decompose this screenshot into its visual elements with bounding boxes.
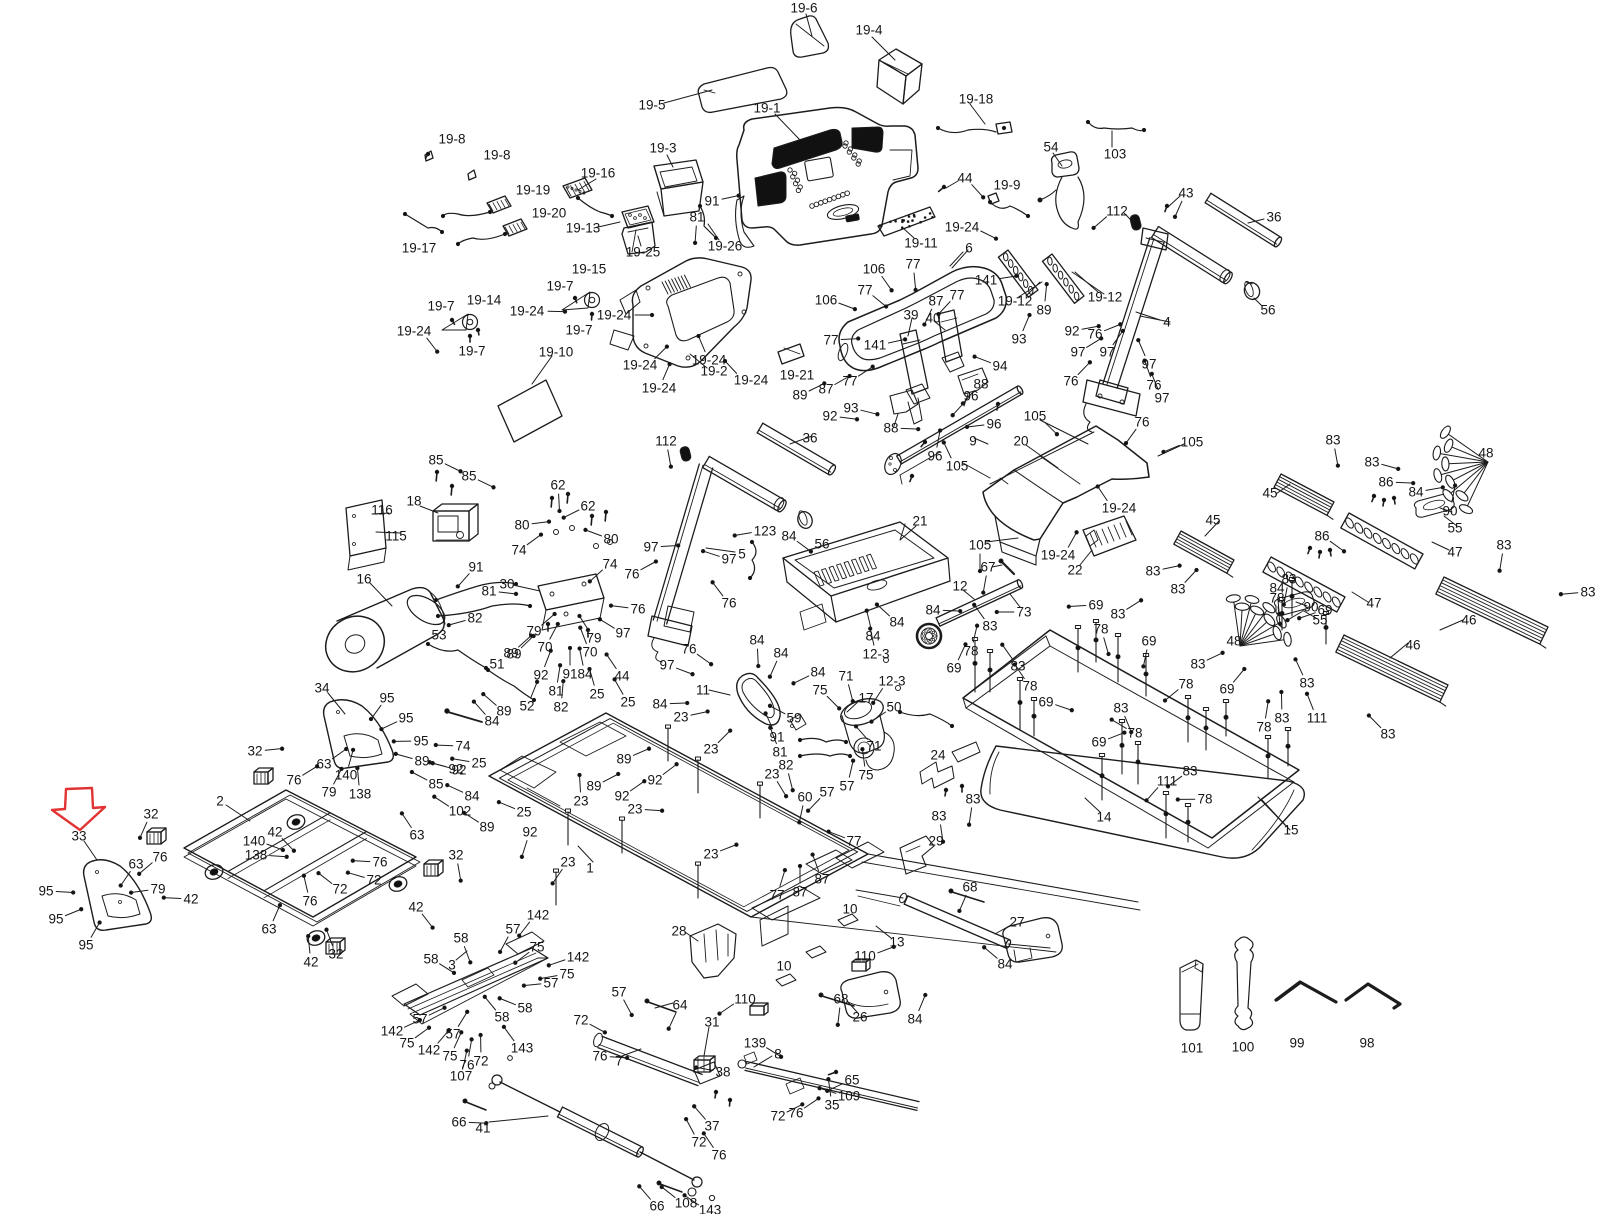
svg-text:27: 27 [1009,915,1024,930]
svg-text:93: 93 [1011,332,1026,347]
svg-text:45: 45 [1262,486,1277,501]
svg-text:46: 46 [1405,638,1420,653]
svg-text:91: 91 [562,667,577,682]
svg-text:75: 75 [442,1049,457,1064]
svg-text:87: 87 [792,885,807,900]
svg-text:87: 87 [814,872,829,887]
svg-text:75: 75 [399,1036,414,1051]
svg-text:19-6: 19-6 [790,1,817,16]
svg-text:91: 91 [468,560,483,575]
svg-text:58: 58 [494,1010,509,1025]
svg-text:32: 32 [328,947,343,962]
svg-text:89: 89 [586,779,601,794]
svg-text:9: 9 [969,434,977,449]
svg-text:57: 57 [445,1027,460,1042]
svg-text:97: 97 [721,552,736,567]
svg-text:50: 50 [886,700,901,715]
svg-text:99: 99 [1289,1036,1304,1051]
svg-text:36: 36 [1266,210,1281,225]
svg-text:83: 83 [1182,764,1197,779]
svg-text:81: 81 [689,210,704,225]
svg-text:83: 83 [1299,676,1314,691]
svg-text:97: 97 [1070,345,1085,360]
svg-text:19-13: 19-13 [566,221,601,236]
svg-text:13: 13 [889,935,904,950]
svg-text:72: 72 [332,882,347,897]
svg-text:75: 75 [559,967,574,982]
svg-text:25: 25 [471,756,486,771]
svg-text:32: 32 [143,807,158,822]
svg-text:92: 92 [448,762,463,777]
svg-text:87: 87 [818,382,833,397]
svg-text:19-20: 19-20 [532,206,567,221]
svg-text:70: 70 [582,645,597,660]
svg-text:74: 74 [602,557,618,572]
svg-text:38: 38 [715,1065,730,1080]
svg-text:79: 79 [150,882,165,897]
svg-text:19-26: 19-26 [708,239,743,254]
svg-text:2: 2 [216,794,224,809]
svg-text:93: 93 [843,401,858,416]
svg-text:89: 89 [792,388,807,403]
svg-text:25: 25 [589,687,604,702]
svg-text:78: 78 [963,644,978,659]
svg-text:19-19: 19-19 [516,183,551,198]
svg-text:84: 84 [907,1012,923,1027]
svg-text:11: 11 [696,683,710,698]
svg-text:78: 78 [1197,792,1212,807]
svg-text:69: 69 [1317,603,1332,618]
svg-text:40: 40 [925,311,940,326]
svg-text:25: 25 [516,805,531,820]
svg-text:84: 84 [781,529,797,544]
svg-text:19-16: 19-16 [581,166,616,181]
svg-text:72: 72 [770,1109,785,1124]
svg-text:82: 82 [553,700,568,715]
svg-text:19-7: 19-7 [565,323,592,338]
svg-text:84: 84 [865,629,881,644]
svg-text:143: 143 [699,1203,722,1214]
svg-text:84: 84 [577,667,593,682]
svg-text:75: 75 [812,683,827,698]
svg-text:77: 77 [842,374,857,389]
svg-text:51: 51 [489,657,504,672]
svg-text:23: 23 [703,742,718,757]
svg-text:10: 10 [776,959,791,974]
svg-text:47: 47 [1366,596,1381,611]
svg-text:141: 141 [864,338,887,353]
svg-text:76: 76 [302,894,317,909]
svg-text:16: 16 [356,572,371,587]
svg-text:25: 25 [620,695,635,710]
svg-text:76: 76 [630,602,645,617]
svg-text:29: 29 [928,834,943,849]
svg-text:91: 91 [769,730,784,745]
svg-text:110: 110 [734,992,756,1007]
svg-text:74: 74 [511,543,527,558]
svg-text:82: 82 [467,611,482,626]
svg-text:41: 41 [475,1121,490,1136]
svg-text:81: 81 [548,684,563,699]
svg-text:63: 63 [261,922,276,937]
svg-text:83: 83 [1010,659,1025,674]
svg-text:73: 73 [1016,605,1031,620]
svg-text:22: 22 [1067,563,1082,578]
svg-text:19-7: 19-7 [427,299,454,314]
svg-text:89: 89 [479,820,494,835]
svg-text:19-17: 19-17 [402,241,437,256]
svg-text:95: 95 [413,734,428,749]
svg-text:84: 84 [464,789,480,804]
svg-text:89: 89 [616,752,631,767]
svg-text:69: 69 [1141,634,1156,649]
svg-text:96: 96 [986,417,1001,432]
svg-text:72: 72 [473,1054,488,1069]
svg-text:19-5: 19-5 [638,98,665,113]
svg-text:89: 89 [414,754,429,769]
svg-text:83: 83 [1170,582,1185,597]
svg-text:103: 103 [1104,147,1127,162]
svg-text:76: 76 [681,642,696,657]
svg-text:19-8: 19-8 [438,132,465,147]
svg-text:19-8: 19-8 [483,148,510,163]
svg-text:37: 37 [704,1119,719,1134]
svg-text:76: 76 [1063,374,1078,389]
svg-text:62: 62 [550,478,565,493]
svg-text:63: 63 [409,828,424,843]
svg-text:72: 72 [573,1013,588,1028]
svg-text:34: 34 [314,681,330,696]
svg-text:76: 76 [624,567,639,582]
svg-text:77: 77 [857,283,872,298]
svg-text:69: 69 [1088,598,1103,613]
svg-text:89: 89 [1036,303,1051,318]
svg-text:105: 105 [1024,409,1047,424]
svg-text:12: 12 [952,579,967,594]
svg-text:32: 32 [448,848,463,863]
svg-text:140: 140 [243,834,266,849]
svg-text:28: 28 [671,924,686,939]
svg-text:141: 141 [975,273,998,288]
svg-text:56: 56 [814,537,829,552]
svg-text:83: 83 [1145,564,1160,579]
svg-text:54: 54 [1043,140,1059,155]
svg-text:106: 106 [863,262,886,277]
svg-text:19-24: 19-24 [623,358,658,373]
svg-text:57: 57 [839,779,854,794]
svg-text:116: 116 [371,503,393,518]
svg-text:19-18: 19-18 [959,92,994,107]
svg-text:90: 90 [1442,504,1457,519]
svg-text:71: 71 [866,739,881,754]
svg-text:110: 110 [854,949,876,964]
svg-text:142: 142 [567,950,590,965]
svg-text:83: 83 [1380,727,1395,742]
svg-text:105: 105 [969,538,992,553]
svg-text:94: 94 [992,359,1008,374]
svg-text:83: 83 [1274,711,1289,726]
svg-text:79: 79 [586,631,601,646]
svg-text:19-11: 19-11 [904,236,938,251]
svg-text:64: 64 [672,998,688,1013]
svg-text:83: 83 [1364,455,1379,470]
svg-text:83: 83 [1190,657,1205,672]
svg-text:62: 62 [580,499,595,514]
svg-text:108: 108 [675,1196,698,1211]
svg-text:84: 84 [925,603,941,618]
svg-text:19-24: 19-24 [1102,501,1137,516]
svg-text:112: 112 [655,434,677,449]
svg-text:107: 107 [450,1069,473,1084]
svg-text:83: 83 [1496,538,1511,553]
svg-text:12-3: 12-3 [878,674,905,689]
svg-text:66: 66 [451,1115,466,1130]
svg-text:35: 35 [824,1098,839,1113]
svg-text:57: 57 [412,1012,427,1027]
svg-text:8: 8 [774,1047,782,1062]
svg-text:74: 74 [455,739,471,754]
svg-text:138: 138 [245,848,268,863]
svg-text:72: 72 [366,873,381,888]
svg-text:57: 57 [819,785,834,800]
svg-text:7: 7 [615,1054,623,1069]
svg-text:68: 68 [962,880,977,895]
svg-text:19-7: 19-7 [458,344,485,359]
svg-text:105: 105 [1181,435,1204,450]
svg-text:44: 44 [957,171,973,186]
svg-text:115: 115 [385,529,407,544]
svg-text:95: 95 [38,884,53,899]
svg-text:95: 95 [379,691,394,706]
svg-text:19-10: 19-10 [539,345,574,360]
svg-text:17: 17 [858,691,873,706]
svg-text:100: 100 [1232,1040,1255,1055]
svg-text:19-12: 19-12 [1088,290,1123,305]
svg-text:45: 45 [1205,513,1220,528]
svg-text:10: 10 [842,902,857,917]
svg-text:48: 48 [1226,634,1241,649]
svg-text:96: 96 [963,389,978,404]
svg-text:55: 55 [1447,521,1462,536]
svg-text:19-3: 19-3 [649,141,676,156]
svg-text:63: 63 [128,857,143,872]
svg-text:123: 123 [754,524,777,539]
svg-text:79: 79 [526,624,541,639]
svg-text:58: 58 [453,931,468,946]
svg-text:84: 84 [749,633,765,648]
svg-text:19-15: 19-15 [572,262,607,277]
svg-text:23: 23 [764,767,779,782]
svg-text:19-4: 19-4 [855,23,883,38]
svg-text:52: 52 [519,699,534,714]
svg-text:98: 98 [1359,1036,1374,1051]
svg-text:143: 143 [511,1041,534,1056]
svg-text:69: 69 [946,661,961,676]
svg-text:97: 97 [1154,391,1169,406]
svg-text:15: 15 [1283,823,1298,838]
svg-text:105: 105 [946,459,969,474]
svg-text:57: 57 [505,922,520,937]
svg-text:84: 84 [889,615,905,630]
svg-text:139: 139 [744,1036,767,1051]
svg-text:83: 83 [982,619,997,634]
svg-text:82: 82 [778,758,793,773]
svg-text:83: 83 [1325,433,1340,448]
svg-text:19-21: 19-21 [780,368,815,383]
svg-text:76: 76 [1087,327,1102,342]
svg-text:96: 96 [927,449,942,464]
svg-text:76: 76 [152,850,167,865]
svg-text:18: 18 [406,494,421,509]
svg-text:80: 80 [514,518,529,533]
svg-text:97: 97 [659,658,674,673]
svg-text:23: 23 [573,794,588,809]
svg-text:19-24: 19-24 [692,353,727,368]
svg-text:58: 58 [423,952,438,967]
svg-text:42: 42 [408,900,423,915]
svg-text:75: 75 [529,940,544,955]
svg-text:6: 6 [965,241,973,256]
svg-text:39: 39 [903,308,918,323]
svg-text:19-12: 19-12 [998,294,1033,309]
svg-text:14: 14 [1096,810,1112,825]
svg-text:19-24: 19-24 [510,304,545,319]
svg-text:19-24: 19-24 [642,381,677,396]
svg-text:5: 5 [738,547,746,562]
svg-text:79: 79 [321,785,336,800]
svg-text:19-7: 19-7 [546,279,573,294]
svg-text:101: 101 [1181,1041,1204,1056]
svg-text:78: 78 [1269,591,1284,606]
svg-text:140: 140 [335,768,358,783]
svg-text:60: 60 [797,790,812,805]
svg-text:23: 23 [627,802,642,817]
svg-text:95: 95 [398,711,413,726]
svg-text:78: 78 [1127,726,1142,741]
svg-text:83: 83 [1281,572,1296,587]
svg-text:30: 30 [499,577,514,592]
svg-text:77: 77 [769,888,784,903]
svg-text:31: 31 [704,1015,719,1030]
svg-text:46: 46 [1461,613,1476,628]
svg-text:91: 91 [704,194,719,209]
svg-text:19-1: 19-1 [753,101,780,116]
svg-text:97: 97 [1141,357,1156,372]
svg-text:66: 66 [649,1199,664,1214]
svg-text:68: 68 [833,992,848,1007]
svg-text:111: 111 [1307,711,1328,726]
svg-text:92: 92 [522,825,537,840]
svg-text:21: 21 [912,514,927,529]
svg-text:19-24: 19-24 [597,308,632,323]
svg-text:3: 3 [448,958,456,973]
svg-text:72: 72 [691,1135,706,1150]
svg-text:138: 138 [349,787,372,802]
svg-text:76: 76 [721,596,736,611]
svg-text:83: 83 [1580,585,1595,600]
svg-text:77: 77 [949,288,964,303]
svg-text:23: 23 [560,855,575,870]
svg-text:85: 85 [461,469,476,484]
svg-text:69: 69 [1219,682,1234,697]
svg-text:23: 23 [673,710,688,725]
svg-text:92: 92 [1064,324,1079,339]
svg-text:78: 78 [1256,720,1271,735]
svg-text:42: 42 [183,892,198,907]
svg-text:77: 77 [905,257,920,272]
svg-text:76: 76 [286,773,301,788]
svg-text:19-24: 19-24 [1041,548,1076,563]
svg-text:4: 4 [1163,315,1171,330]
svg-text:88: 88 [883,421,898,436]
svg-text:56: 56 [1260,303,1275,318]
svg-text:57: 57 [611,985,626,1000]
svg-text:102: 102 [449,804,472,819]
svg-text:84: 84 [810,665,826,680]
svg-text:83: 83 [1110,607,1125,622]
svg-text:92: 92 [533,668,548,683]
svg-text:77: 77 [846,834,861,849]
svg-text:1: 1 [586,861,594,876]
svg-text:142: 142 [418,1043,441,1058]
svg-text:47: 47 [1447,545,1462,560]
svg-text:80: 80 [603,532,618,547]
svg-text:69: 69 [1091,735,1106,750]
svg-text:24: 24 [930,748,946,763]
svg-text:19-24: 19-24 [397,324,432,339]
svg-text:85: 85 [428,777,443,792]
svg-text:19-9: 19-9 [993,178,1020,193]
svg-text:63: 63 [316,757,331,772]
svg-text:83: 83 [931,809,946,824]
svg-text:86: 86 [1314,529,1329,544]
svg-text:53: 53 [431,628,446,643]
svg-text:42: 42 [303,955,318,970]
svg-text:76: 76 [592,1049,607,1064]
svg-text:78: 78 [1178,677,1193,692]
svg-text:111: 111 [1157,774,1178,789]
svg-text:84: 84 [773,646,789,661]
svg-text:44: 44 [614,669,630,684]
svg-text:92: 92 [822,409,837,424]
svg-text:69: 69 [1038,695,1053,710]
svg-text:70: 70 [537,640,552,655]
svg-text:142: 142 [527,908,550,923]
svg-text:75: 75 [858,768,873,783]
svg-text:78: 78 [1022,679,1037,694]
svg-text:112: 112 [1106,204,1128,219]
svg-text:76: 76 [788,1106,803,1121]
svg-text:19-14: 19-14 [467,293,502,308]
svg-text:65: 65 [844,1073,859,1088]
svg-text:83: 83 [1113,701,1128,716]
svg-text:32: 32 [247,744,262,759]
svg-text:81: 81 [481,584,496,599]
svg-text:76: 76 [372,855,387,870]
svg-text:19-25: 19-25 [626,245,661,260]
svg-text:58: 58 [517,1001,532,1016]
svg-text:59: 59 [786,711,801,726]
svg-text:86: 86 [1378,475,1393,490]
svg-text:87: 87 [928,294,943,309]
svg-text:95: 95 [78,938,93,953]
svg-text:43: 43 [1178,186,1193,201]
svg-text:57: 57 [543,976,558,991]
svg-text:36: 36 [802,431,817,446]
svg-text:97: 97 [1099,345,1114,360]
svg-text:89: 89 [503,646,518,661]
svg-text:85: 85 [428,453,443,468]
